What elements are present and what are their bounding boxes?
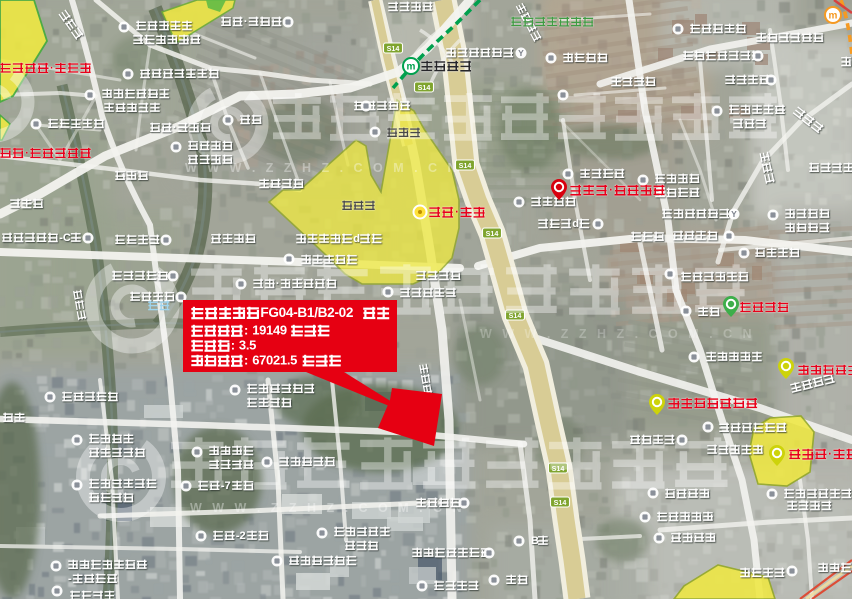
svg-text:·: ·: [173, 122, 177, 134]
svg-text:·: ·: [50, 61, 54, 75]
svg-text:Y: Y: [518, 48, 524, 58]
svg-text:19149: 19149: [252, 322, 287, 337]
svg-text:FG04-B1/B2-02: FG04-B1/B2-02: [260, 305, 354, 320]
svg-text::: :: [244, 352, 248, 367]
svg-text:B: B: [531, 535, 539, 547]
svg-text:-7: -7: [221, 480, 231, 492]
svg-text:67021.5: 67021.5: [252, 352, 297, 367]
svg-text:·: ·: [828, 447, 832, 461]
svg-text:d: d: [353, 233, 360, 245]
svg-text:-C: -C: [59, 232, 71, 244]
svg-text:d: d: [572, 218, 579, 230]
svg-text:·: ·: [25, 146, 29, 160]
svg-text:S14: S14: [486, 229, 499, 238]
svg-text:·: ·: [244, 16, 248, 28]
svg-text:W W W . Z Z H Z . C O M . C N: W W W . Z Z H Z . C O M . C N: [480, 327, 755, 341]
svg-text:S14: S14: [418, 83, 431, 92]
svg-text:S14: S14: [387, 44, 400, 53]
svg-text:S14: S14: [459, 161, 472, 170]
svg-text::: :: [244, 322, 248, 337]
svg-text:-: -: [68, 573, 72, 585]
svg-text:m: m: [829, 11, 838, 22]
svg-text:Y: Y: [731, 209, 737, 219]
svg-text:·: ·: [276, 278, 280, 290]
svg-text:3.5: 3.5: [239, 337, 256, 352]
svg-text::: :: [231, 337, 235, 352]
svg-text:S14: S14: [554, 498, 567, 507]
svg-text:·: ·: [609, 183, 613, 197]
svg-text:·: ·: [455, 205, 459, 219]
svg-text:-2: -2: [236, 530, 246, 542]
svg-text:m: m: [407, 62, 416, 73]
